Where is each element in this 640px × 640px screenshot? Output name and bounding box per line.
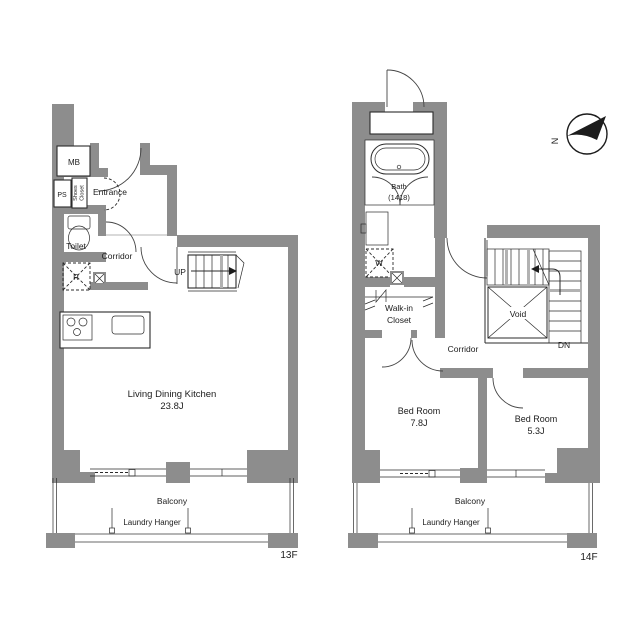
wall [288,247,298,450]
room-label-walkin-1: Walk-in [385,303,413,313]
toilet-door-arc [106,222,136,252]
balcony-rail [365,534,570,542]
room-label-corridor: Corridor [102,251,133,261]
wall [434,102,447,238]
compass-north-label: N [550,138,560,145]
room-label-bath: Bath [391,182,406,191]
wall [435,238,445,338]
room-label-ldk-size: 23.8J [160,401,183,412]
stair-landing [370,112,433,134]
closet-hanger-symbol [376,290,386,302]
wall [588,225,600,450]
laundry-post-foot [410,528,415,533]
room-label-bedroom2: Bed Room [515,414,558,424]
floorplan-13f: MB PS Shoes Closet Entrance Toilet Corri… [46,104,298,561]
kitchen-counter [60,312,150,348]
wall [140,165,177,175]
corridor-door-arc [447,238,487,278]
stairs-up-label: UP [174,267,186,277]
compass: N [550,114,607,154]
room-label-corridor: Corridor [448,344,479,354]
floorplan-14f: Bath (1418) W Walk-in Closet Corridor Vo… [348,70,600,563]
wall [352,450,380,483]
floorplan-drawing: MB PS Shoes Closet Entrance Toilet Corri… [0,0,640,640]
stair-break-line [236,255,244,288]
room-label-refrigerator: R [73,273,79,282]
wall [411,330,417,338]
wall [545,448,600,483]
bathtub-outer [371,144,429,174]
room-label-walkin-2: Closet [387,315,412,325]
wall [167,175,177,236]
wall [177,235,298,247]
laundry-post-foot [186,528,191,533]
closet-door-arc [382,338,411,367]
ldk-door-arc [141,247,177,283]
laundry-post-foot [110,528,115,533]
void-label: Void [510,309,527,319]
balcony-rail [64,534,274,542]
stair-tread-gray [505,249,508,285]
bedroom1-door-arc [412,340,443,371]
wall [440,368,493,378]
wall [352,330,382,338]
wall [98,214,106,236]
wall [352,277,390,287]
bedroom2-door-arc [493,378,523,408]
stair-treads [549,261,581,331]
room-label-bath-size: (1418) [388,193,410,202]
wall [404,277,445,287]
room-label-mb: MB [68,158,80,167]
window-stop [129,470,135,477]
wall [478,378,487,470]
room-label-balcony: Balcony [157,496,188,506]
wall [52,450,95,483]
wall [52,104,74,148]
room-label-balcony: Balcony [455,496,486,506]
washbasin [366,212,388,245]
stair-run-right [549,251,581,343]
laundry-post-foot [486,528,491,533]
bathtub-inner [375,148,425,170]
room-label-bedroom2-size: 5.3J [527,426,544,436]
bathtub-drain [397,165,401,169]
washer-label: W [375,259,383,268]
stair-run-top [487,249,549,285]
roof-door-arc [387,70,424,107]
wall [352,102,365,450]
floor-label-14f: 14F [580,552,597,563]
balcony-end-block [567,533,597,548]
room-label-bedroom1-size: 7.8J [410,418,427,428]
laundry-hanger-label: Laundry Hanger [422,518,480,527]
stairs-dn-label: DN [558,340,570,350]
wall-pillar [166,462,190,483]
laundry-hanger-label: Laundry Hanger [123,518,181,527]
wall [52,252,106,262]
balcony-end-block [348,533,378,548]
room-label-toilet: Toilet [66,241,86,251]
room-label-ldk: Living Dining Kitchen [128,389,217,400]
balcony-end-block [46,533,75,548]
stair-tread-gray [527,249,530,285]
toilet-tank [68,216,90,229]
window-stop [429,471,435,478]
stair-tread-gray [549,289,581,292]
room-label-shoes-2: Closet [80,185,86,201]
room-label-entrance: Entrance [93,187,127,197]
floorplan-page: MB PS Shoes Closet Entrance Toilet Corri… [0,0,640,640]
floor-label-13f: 13F [280,550,297,561]
balcony-end-block [268,533,298,548]
wall [487,225,600,238]
room-label-shoes-1: Shoes [73,185,79,201]
room-label-bedroom1: Bed Room [398,406,441,416]
room-label-ps: PS [57,192,67,199]
wall [523,368,600,378]
wall-pillar [460,468,487,483]
